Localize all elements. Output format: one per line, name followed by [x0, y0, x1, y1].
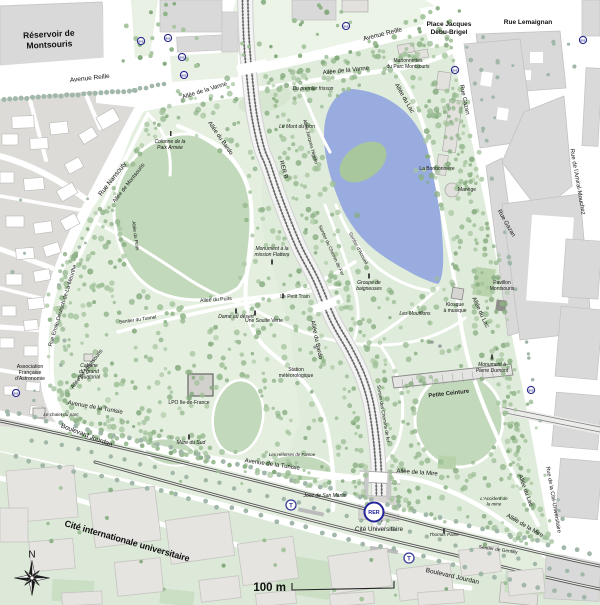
svg-text:Debu-Brigel: Debu-Brigel: [431, 29, 468, 36]
svg-text:baigneuses: baigneuses: [356, 286, 382, 292]
svg-text:Pierre Dumont: Pierre Dumont: [476, 368, 509, 374]
svg-text:T: T: [407, 555, 411, 562]
svg-text:Du premier frisson: Du premier frisson: [293, 86, 334, 92]
svg-text:mission Flatters: mission Flatters: [254, 252, 290, 258]
svg-text:Cité Universitaire: Cité Universitaire: [355, 526, 403, 533]
svg-text:BUS: BUS: [452, 69, 457, 72]
svg-text:équatorial: équatorial: [78, 375, 101, 381]
svg-text:la mine: la mine: [487, 501, 502, 506]
svg-text:BUS: BUS: [179, 56, 184, 59]
svg-text:Place Jacques: Place Jacques: [427, 21, 472, 28]
svg-text:Les Héloïses de Famoe: Les Héloïses de Famoe: [269, 452, 316, 457]
svg-text:LPO Ile-de-France: LPO Ile-de-France: [168, 400, 209, 406]
svg-text:Mare du Sud: Mare du Sud: [177, 440, 206, 446]
svg-text:Les Moufflons: Les Moufflons: [399, 311, 431, 317]
svg-text:Paix Armée: Paix Armée: [157, 145, 183, 151]
svg-text:Le Petit Train: Le Petit Train: [280, 294, 310, 300]
svg-text:T: T: [289, 502, 293, 509]
svg-text:BUS: BUS: [343, 25, 348, 28]
svg-text:✻: ✻: [438, 344, 442, 350]
svg-text:BUS: BUS: [13, 392, 18, 395]
svg-text:Le chalet du parc: Le chalet du parc: [43, 412, 79, 417]
svg-text:RER: RER: [368, 510, 379, 516]
svg-text:BUS: BUS: [165, 37, 170, 40]
svg-text:du Parc Montsouris: du Parc Montsouris: [386, 64, 430, 70]
svg-text:La Bonbonnière: La Bonbonnière: [419, 166, 455, 172]
svg-text:Le Mont du Lion: Le Mont du Lion: [279, 124, 315, 130]
svg-text:à musique: à musique: [443, 308, 466, 314]
svg-text:Manège: Manège: [458, 187, 476, 193]
svg-text:100 m: 100 m: [253, 582, 286, 594]
svg-text:BUS: BUS: [138, 40, 143, 43]
svg-text:BUS: BUS: [580, 39, 585, 42]
svg-text:Montsouris: Montsouris: [490, 286, 515, 292]
svg-text:BUS: BUS: [181, 74, 186, 77]
svg-text:météorologique: météorologique: [279, 373, 314, 379]
svg-text:Une Soulte Verte: Une Soulte Verte: [245, 318, 283, 324]
svg-text:N: N: [28, 550, 35, 561]
svg-text:José de San Martin: José de San Martin: [302, 493, 346, 499]
svg-text:BUS: BUS: [528, 389, 533, 392]
svg-text:✻: ✻: [430, 340, 434, 346]
svg-text:L'Accident de: L'Accident de: [480, 496, 508, 501]
svg-text:Rue Lemaignan: Rue Lemaignan: [504, 19, 552, 26]
svg-text:d'Astronomie: d'Astronomie: [15, 376, 45, 382]
svg-text:✻: ✻: [313, 345, 317, 351]
